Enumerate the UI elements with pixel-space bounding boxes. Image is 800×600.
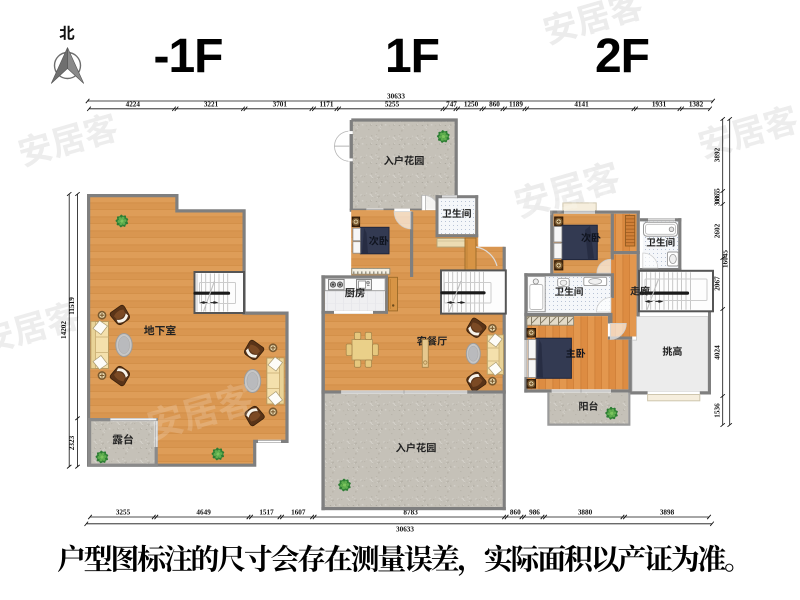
svg-text:860: 860	[510, 509, 521, 517]
svg-text:4141: 4141	[574, 101, 589, 109]
svg-text:3701: 3701	[273, 101, 288, 109]
svg-text:747: 747	[446, 101, 457, 109]
svg-text:4649: 4649	[196, 509, 211, 517]
svg-text:3255: 3255	[116, 509, 131, 517]
svg-text:3880: 3880	[578, 509, 593, 517]
svg-text:16045: 16045	[721, 250, 729, 268]
svg-text:308655: 308655	[713, 188, 721, 206]
svg-text:1517: 1517	[259, 509, 274, 517]
svg-text:30633: 30633	[396, 526, 414, 534]
svg-text:5255: 5255	[385, 101, 400, 109]
svg-text:1931: 1931	[652, 101, 667, 109]
svg-text:3221: 3221	[204, 101, 219, 109]
svg-text:1171: 1171	[320, 101, 334, 109]
svg-text:1607: 1607	[291, 509, 306, 517]
svg-text:2602: 2602	[713, 223, 721, 238]
svg-text:-1F: -1F	[154, 30, 223, 83]
svg-text:4224: 4224	[126, 101, 141, 109]
svg-text:14202: 14202	[60, 321, 68, 339]
svg-text:4024: 4024	[713, 345, 721, 360]
svg-text:860: 860	[489, 101, 500, 109]
svg-text:1250: 1250	[464, 101, 479, 109]
svg-text:1536: 1536	[713, 403, 721, 418]
svg-text:3898: 3898	[660, 509, 675, 517]
svg-text:2323: 2323	[68, 435, 76, 450]
svg-text:1189: 1189	[509, 101, 523, 109]
svg-text:1382: 1382	[689, 101, 704, 109]
svg-text:11519: 11519	[68, 297, 76, 315]
svg-text:30633: 30633	[387, 93, 405, 101]
svg-text:1F: 1F	[385, 30, 439, 83]
svg-text:2F: 2F	[595, 30, 649, 83]
svg-text:3892: 3892	[713, 147, 721, 162]
svg-text:986: 986	[529, 509, 540, 517]
svg-text:2067: 2067	[713, 276, 721, 291]
